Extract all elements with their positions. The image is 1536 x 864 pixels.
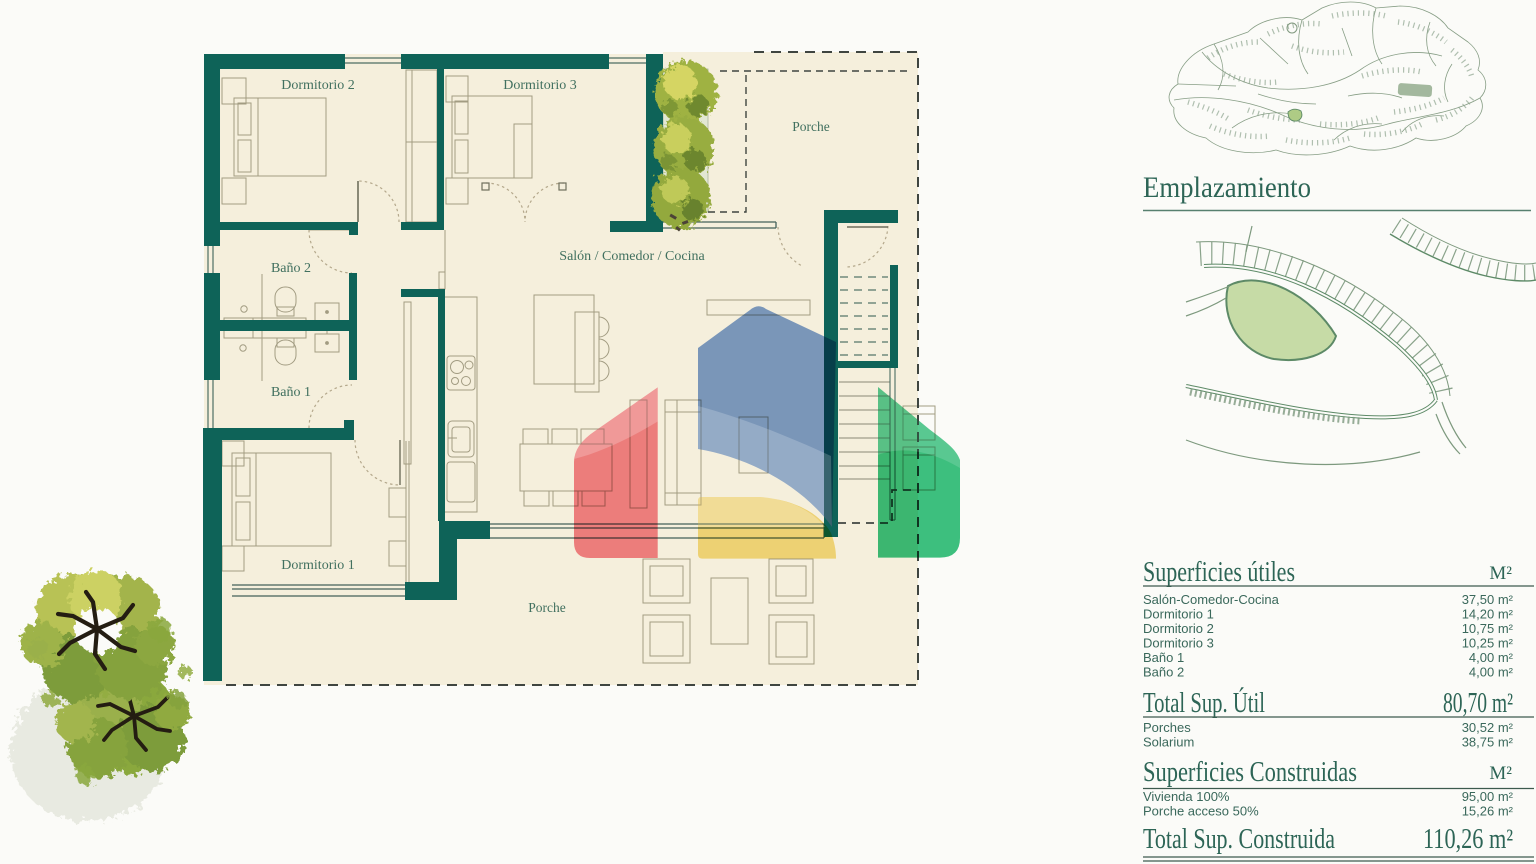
svg-text:Total Sup. Útil: Total Sup. Útil (1143, 688, 1265, 719)
svg-text:14,20 m²: 14,20 m² (1462, 607, 1514, 622)
svg-text:Vivienda 100%: Vivienda 100% (1143, 789, 1230, 804)
svg-text:Porche acceso 50%: Porche acceso 50% (1143, 804, 1259, 819)
svg-text:Porches: Porches (1143, 720, 1191, 735)
svg-text:4,00 m²: 4,00 m² (1469, 650, 1514, 665)
svg-text:Dormitorio 1: Dormitorio 1 (281, 558, 355, 573)
svg-text:Porche: Porche (528, 600, 566, 615)
svg-text:Superficies útiles: Superficies útiles (1143, 557, 1295, 588)
svg-text:Dormitorio 3: Dormitorio 3 (503, 78, 577, 93)
svg-text:10,75 m²: 10,75 m² (1462, 621, 1514, 636)
svg-text:80,70 m²: 80,70 m² (1443, 688, 1513, 719)
svg-text:Baño 2: Baño 2 (271, 261, 311, 276)
svg-text:4,00 m²: 4,00 m² (1469, 665, 1514, 680)
svg-text:Salón-Comedor-Cocina: Salón-Comedor-Cocina (1143, 592, 1280, 607)
svg-text:Dormitorio 1: Dormitorio 1 (1143, 607, 1214, 622)
svg-text:Porche: Porche (792, 119, 830, 134)
svg-text:30,52 m²: 30,52 m² (1462, 720, 1514, 735)
svg-text:Dormitorio 2: Dormitorio 2 (281, 78, 355, 93)
svg-text:Baño 1: Baño 1 (1143, 650, 1184, 665)
svg-text:37,50 m²: 37,50 m² (1462, 592, 1514, 607)
svg-text:Salón / Comedor / Cocina: Salón / Comedor / Cocina (559, 249, 705, 264)
svg-text:Emplazamiento: Emplazamiento (1143, 171, 1311, 204)
svg-text:Solarium: Solarium (1143, 735, 1194, 750)
svg-text:M²: M² (1489, 763, 1512, 784)
svg-text:Total Sup. Construida: Total Sup. Construida (1143, 824, 1335, 855)
svg-text:10,25 m²: 10,25 m² (1462, 636, 1514, 651)
svg-text:M²: M² (1489, 563, 1512, 584)
svg-text:Baño 1: Baño 1 (271, 385, 311, 400)
svg-text:15,26 m²: 15,26 m² (1462, 804, 1514, 819)
svg-text:Dormitorio 2: Dormitorio 2 (1143, 621, 1214, 636)
svg-text:95,00 m²: 95,00 m² (1462, 789, 1514, 804)
svg-text:Superficies Construidas: Superficies Construidas (1143, 757, 1357, 788)
svg-text:38,75 m²: 38,75 m² (1462, 735, 1514, 750)
svg-text:110,26 m²: 110,26 m² (1423, 824, 1513, 855)
svg-text:Baño 2: Baño 2 (1143, 665, 1184, 680)
svg-text:Dormitorio 3: Dormitorio 3 (1143, 636, 1214, 651)
